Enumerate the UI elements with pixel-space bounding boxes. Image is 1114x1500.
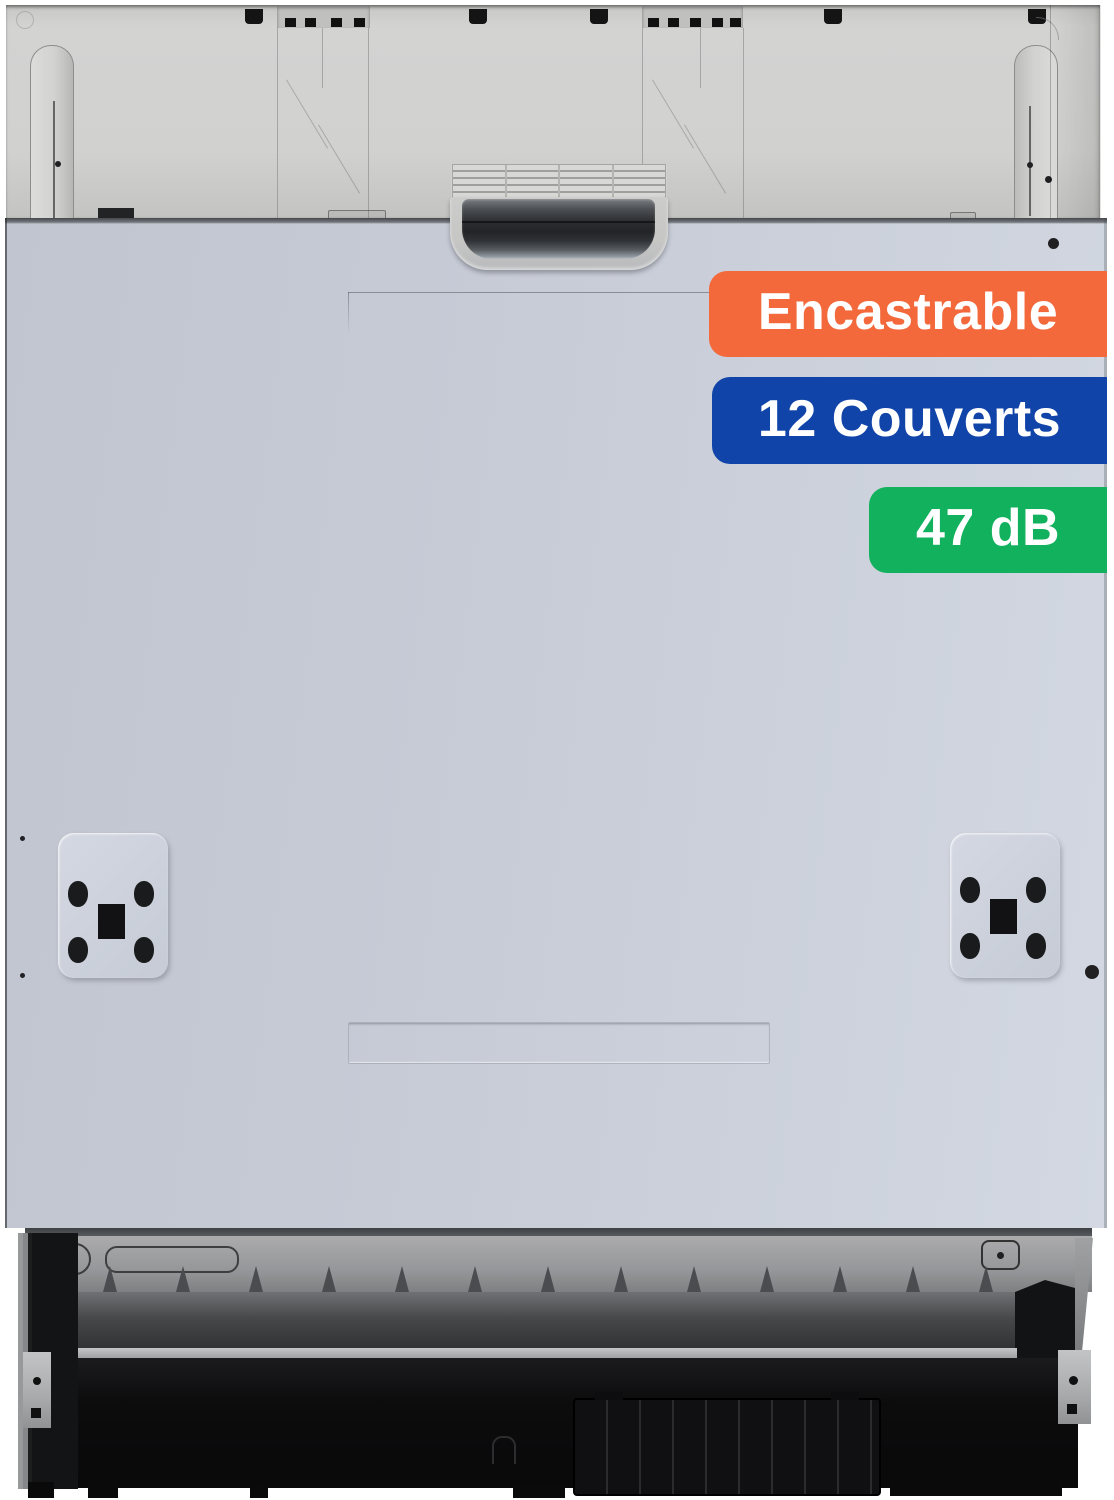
mounting-plate-right	[950, 833, 1060, 978]
plate-hole	[960, 933, 980, 959]
base-right-side-panel	[1075, 1238, 1093, 1350]
frame-clip	[469, 9, 487, 24]
frame-seam-diagonal	[652, 79, 694, 148]
dishwasher-product-photo: Encastrable 12 Couverts 47 dB	[0, 0, 1114, 1500]
base-tab-dot	[997, 1252, 1004, 1259]
cutout-tab	[305, 18, 316, 27]
frame-seam	[322, 28, 323, 88]
frame-vent-cutout-right	[642, 6, 743, 28]
base-side-plate-left	[23, 1352, 51, 1428]
badge-encastrable-label: Encastrable	[758, 282, 1058, 342]
badge-couverts: 12 Couverts	[712, 377, 1107, 464]
door-recessed-label-area	[348, 1022, 770, 1064]
side-plate-dot	[33, 1377, 41, 1385]
frame-clip	[245, 9, 263, 24]
frame-vent-cutout-left	[277, 6, 370, 28]
cutout-tab	[285, 18, 296, 27]
vent-grille-column	[453, 165, 505, 200]
frame-seam-diagonal	[684, 124, 726, 193]
frame-corner-circle	[16, 11, 34, 29]
base-top-strip	[25, 1236, 1092, 1292]
frame-seam	[277, 28, 278, 218]
cutout-tab	[648, 18, 659, 27]
base-tooth	[176, 1266, 190, 1292]
leveling-foot	[890, 1478, 1062, 1496]
frame-side-shading	[1050, 5, 1101, 220]
leveling-foot	[513, 1484, 565, 1498]
frame-seam-diagonal	[286, 79, 328, 148]
base-tooth	[614, 1266, 628, 1292]
door-handle	[462, 199, 655, 259]
base-tooth	[979, 1266, 993, 1292]
badge-encastrable: Encastrable	[709, 271, 1107, 357]
frame-seam	[368, 28, 369, 218]
leveling-foot	[28, 1482, 54, 1498]
vent-grille-column	[507, 165, 559, 200]
slot-inner-line	[53, 101, 55, 219]
plate-hole	[1026, 933, 1046, 959]
handle-gap-line	[462, 221, 655, 223]
ribbed-panel-tab	[831, 1392, 859, 1400]
badge-noise-level-label: 47 dB	[916, 498, 1060, 558]
plate-square-hole	[990, 899, 1017, 934]
cutout-tab	[331, 18, 342, 27]
base-side-plate-right	[1058, 1350, 1091, 1424]
door-left-edge	[5, 218, 7, 1228]
base-tooth	[687, 1266, 701, 1292]
plate-hole	[68, 881, 88, 907]
plate-hole	[68, 937, 88, 963]
mounting-plate-left	[58, 833, 168, 978]
plate-hole	[134, 881, 154, 907]
frame-clip	[590, 9, 608, 24]
base-tooth	[833, 1266, 847, 1292]
door-screw-dot	[20, 973, 25, 978]
cutout-tab	[354, 18, 365, 27]
frame-seam	[743, 28, 744, 218]
top-mounting-frame	[6, 5, 1100, 220]
base-tooth	[468, 1266, 482, 1292]
slot-screw-dot	[55, 161, 61, 167]
base-tooth	[322, 1266, 336, 1292]
vent-grille	[452, 164, 666, 201]
base-tooth	[906, 1266, 920, 1292]
side-plate-dot	[1069, 1376, 1078, 1385]
badge-noise-level: 47 dB	[869, 487, 1107, 573]
plate-hole	[134, 937, 154, 963]
leveling-foot	[250, 1486, 268, 1498]
frame-seam-diagonal	[318, 124, 360, 193]
base-right-column	[1015, 1280, 1075, 1360]
door-screw-dot	[1048, 238, 1059, 249]
side-plate-square	[31, 1408, 41, 1418]
door-crease-nick	[348, 292, 349, 334]
kick-plate-ribbed-panel	[573, 1398, 881, 1496]
cutout-tab	[730, 18, 741, 27]
cutout-tab	[668, 18, 679, 27]
slot-screw-dot	[1027, 162, 1033, 168]
frame-clip	[824, 9, 842, 24]
base-tooth	[760, 1266, 774, 1292]
plate-square-hole	[98, 904, 125, 939]
base-tooth	[249, 1266, 263, 1292]
cutout-tab	[690, 18, 701, 27]
base-slope	[30, 1292, 1017, 1350]
plate-hole	[1026, 877, 1046, 903]
base-tooth	[541, 1266, 555, 1292]
leveling-foot	[88, 1476, 118, 1498]
base-tooth	[103, 1266, 117, 1292]
kick-plate-u-detail	[492, 1436, 516, 1464]
base-slot-outline	[105, 1246, 239, 1273]
frame-seam	[700, 28, 701, 88]
plate-hole	[960, 877, 980, 903]
door-right-edge	[1104, 218, 1107, 1228]
cutout-tab	[712, 18, 723, 27]
door-screw-dot	[20, 836, 25, 841]
slot-inner-line	[1029, 106, 1031, 216]
kick-plate	[70, 1358, 1078, 1488]
vent-grille-column	[560, 165, 612, 200]
vent-grille-column	[614, 165, 666, 200]
ribbed-panel-tab	[595, 1392, 623, 1400]
badge-couverts-label: 12 Couverts	[758, 389, 1061, 449]
mounting-rail-slot-left	[30, 45, 74, 221]
base-tooth	[395, 1266, 409, 1292]
door-panel	[5, 218, 1107, 1228]
side-plate-square	[1067, 1404, 1077, 1414]
door-screw-dot	[1085, 965, 1099, 979]
